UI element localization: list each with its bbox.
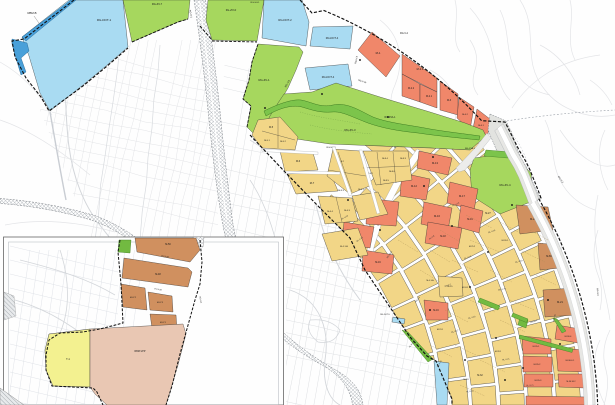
svg-text:M-28.1: M-28.1 [495, 351, 502, 353]
svg-text:M-47.1: M-47.1 [160, 322, 167, 324]
svg-text:RG-ZV-7: RG-ZV-7 [152, 2, 163, 6]
svg-text:RBM-VPP: RBM-VPP [135, 350, 146, 353]
svg-text:M-6: M-6 [296, 160, 301, 163]
svg-text:M-33: M-33 [464, 379, 470, 381]
svg-text:RG-ZV-3: RG-ZV-3 [344, 128, 355, 132]
svg-text:M-5.1: M-5.1 [264, 140, 270, 142]
svg-text:RL-ZV-0: RL-ZV-0 [226, 8, 237, 12]
svg-text:M-69: M-69 [546, 255, 552, 258]
svg-text:M-1: M-1 [376, 51, 381, 55]
svg-text:M-32: M-32 [477, 374, 483, 377]
svg-text:M-8.4: M-8.4 [382, 158, 388, 160]
svg-text:M-16: M-16 [375, 261, 381, 264]
svg-text:M-5: M-5 [269, 126, 274, 129]
svg-text:M-36.4: M-36.4 [565, 336, 573, 338]
svg-text:RG-DOT-4: RG-DOT-4 [322, 75, 335, 79]
svg-text:RG-ZVA-1: RG-ZVA-1 [385, 116, 397, 119]
svg-text:RG-ZV-4: RG-ZV-4 [499, 183, 510, 187]
svg-text:M-35.3: M-35.3 [535, 380, 543, 382]
svg-text:M-9.3: M-9.3 [338, 190, 344, 192]
svg-text:M-27: M-27 [485, 212, 491, 215]
svg-text:M-19: M-19 [467, 218, 473, 221]
svg-text:RG-V-2: RG-V-2 [400, 32, 409, 35]
svg-text:M-13: M-13 [432, 161, 438, 165]
svg-text:M-2.1: M-2.1 [426, 95, 433, 98]
svg-text:RG-ZVA-3: RG-ZVA-3 [465, 147, 476, 150]
svg-text:M-26.1: M-26.1 [502, 240, 510, 242]
svg-text:RG-DOT-2: RG-DOT-2 [278, 18, 292, 22]
svg-text:M-4.2: M-4.2 [462, 114, 468, 116]
svg-text:M-25.2: M-25.2 [469, 246, 476, 248]
svg-text:M-36.36.2: M-36.36.2 [566, 381, 576, 383]
svg-text:M-17: M-17 [459, 194, 465, 198]
svg-text:M-9.1: M-9.1 [358, 189, 364, 191]
svg-text:RG-SU-1: RG-SU-1 [251, 2, 261, 4]
svg-text:M-12: M-12 [411, 184, 417, 188]
svg-text:M-4.1-A: M-4.1-A [426, 279, 434, 282]
svg-text:M-8.6: M-8.6 [389, 171, 395, 173]
svg-text:M-47.2: M-47.2 [130, 297, 137, 299]
svg-text:M-4.3: M-4.3 [344, 210, 350, 212]
svg-text:M-24.1: M-24.1 [462, 287, 469, 289]
svg-text:M-4.1-B: M-4.1-B [340, 246, 348, 248]
svg-text:M-48: M-48 [155, 273, 161, 276]
svg-text:RG-ZV-1: RG-ZV-1 [258, 78, 269, 82]
svg-text:M-35.2: M-35.2 [534, 364, 542, 366]
svg-text:M-36.6.1: M-36.6.1 [566, 360, 575, 362]
svg-text:M-35.1: M-35.1 [533, 346, 541, 348]
svg-text:T-1: T-1 [66, 357, 70, 361]
svg-text:M-47.3: M-47.3 [157, 302, 164, 304]
svg-text:M-21: M-21 [557, 300, 563, 304]
svg-text:M-3: M-3 [447, 99, 452, 102]
svg-text:M-18: M-18 [440, 235, 446, 238]
svg-text:M-4.1: M-4.1 [478, 125, 484, 127]
svg-text:M-16: M-16 [433, 309, 439, 312]
svg-text:M-2.2: M-2.2 [408, 87, 415, 90]
svg-text:M-7: M-7 [310, 181, 315, 185]
svg-text:M-8.3: M-8.3 [400, 158, 406, 160]
svg-text:RG-DOT-1: RG-DOT-1 [97, 18, 112, 22]
svg-text:M-50: M-50 [165, 243, 171, 246]
svg-text:M-16: M-16 [434, 214, 440, 218]
svg-text:M-5.2: M-5.2 [280, 141, 286, 143]
svg-text:RG-DOT-5: RG-DOT-5 [380, 314, 390, 316]
svg-text:M-23.1: M-23.1 [437, 329, 444, 331]
svg-text:RG-DOT-4: RG-DOT-4 [326, 36, 339, 40]
svg-text:M-8.5: M-8.5 [383, 180, 389, 182]
svg-text:M-4.4: M-4.4 [327, 211, 333, 213]
svg-text:RBM-B: RBM-B [27, 11, 36, 15]
